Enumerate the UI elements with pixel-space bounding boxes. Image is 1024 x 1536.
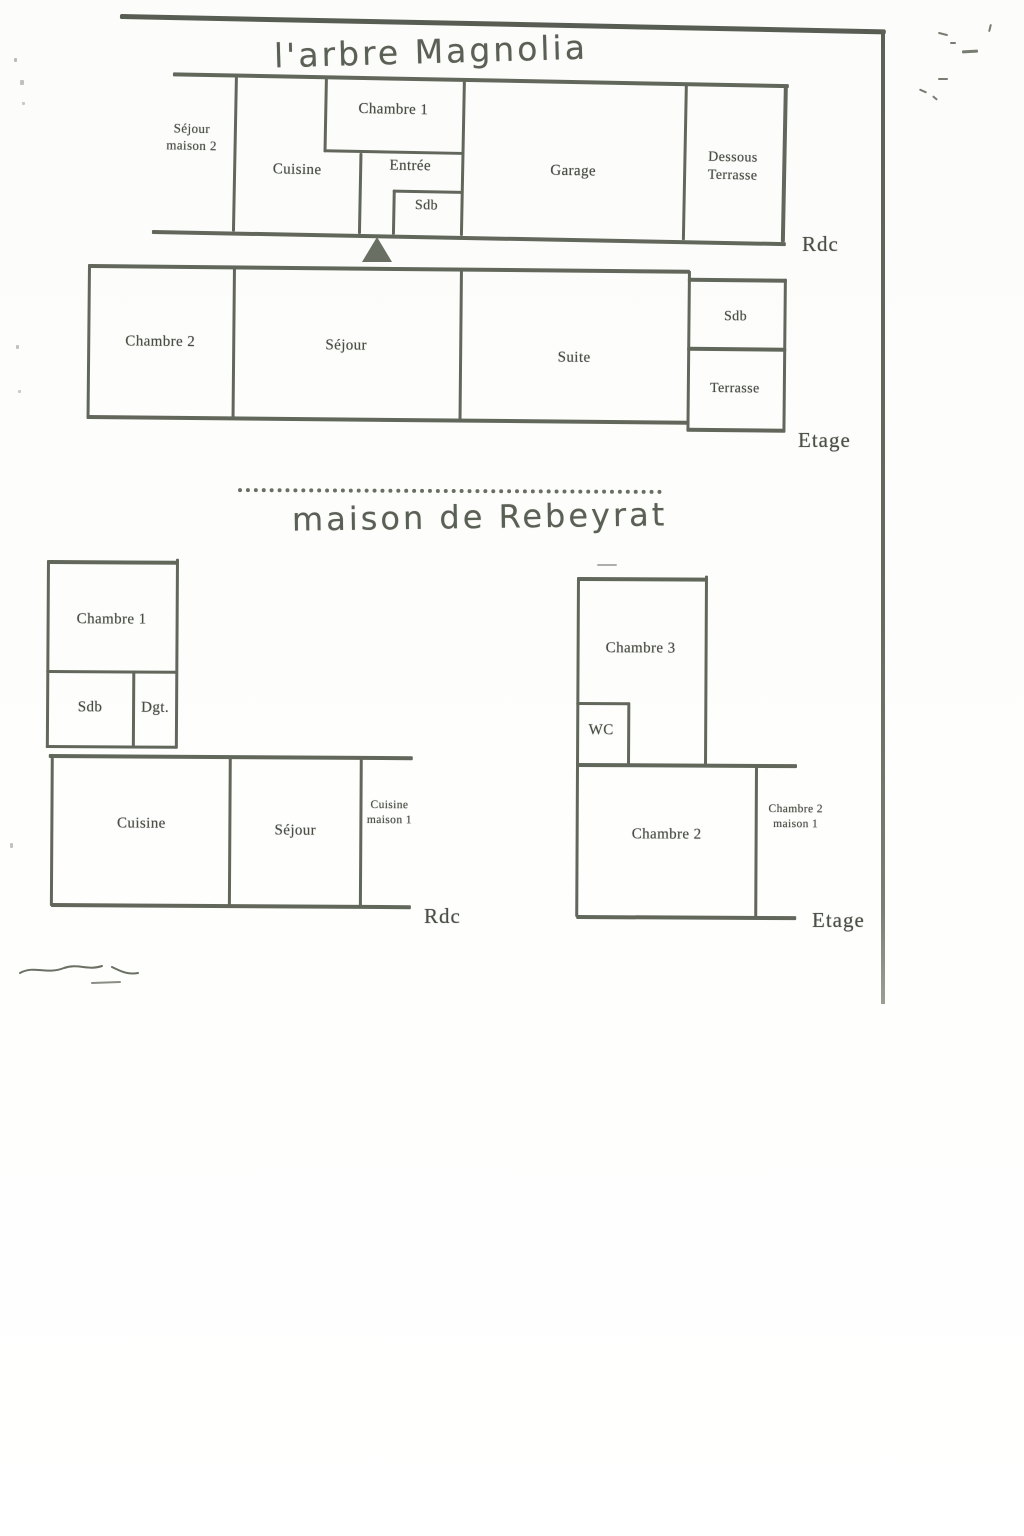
wall-segment xyxy=(754,765,758,917)
wall-segment xyxy=(232,77,238,232)
scan-artifact xyxy=(938,32,948,36)
floor-label-rebeyrat-etage: Etage xyxy=(812,908,865,933)
wall-segment xyxy=(393,190,463,194)
room-wc: WC xyxy=(577,721,625,741)
scan-artifact xyxy=(22,102,25,105)
wall-segment xyxy=(781,87,788,242)
wall-segment xyxy=(46,670,177,674)
room-chambre2: Chambre 2 xyxy=(93,332,227,353)
scan-artifact xyxy=(962,50,978,54)
wall-segment xyxy=(87,264,91,418)
scanned-floorplan-page: l'arbre Magnolia Séjour maison 2 Cuisine… xyxy=(0,0,1024,1536)
wall-segment xyxy=(576,763,797,768)
room-dessous-terrasse: Dessous Terrasse xyxy=(685,148,781,186)
house-title-magnolia: l'arbre Magnolia xyxy=(274,28,589,76)
floor-label-rebeyrat-rdc: Rdc xyxy=(424,904,461,929)
plan-magnolia-etage: Chambre 2 Séjour Suite Sdb Terrasse xyxy=(86,264,787,439)
plan-rebeyrat-rdc: Chambre 1 Sdb Dgt. Cuisine Séjour Cuisin… xyxy=(45,558,419,914)
wall-segment xyxy=(228,756,232,906)
wall-segment xyxy=(576,915,796,920)
scan-artifact xyxy=(16,345,19,349)
scan-artifact xyxy=(932,95,938,100)
floor-label-magnolia-rdc: Rdc xyxy=(802,232,839,257)
page-right-border-line xyxy=(881,30,885,1004)
plan-rebeyrat-etage: Chambre 3 WC Chambre 2 Chambre 2 maison … xyxy=(575,575,805,928)
section-divider-dashed-line xyxy=(238,488,662,494)
wall-segment xyxy=(46,745,177,749)
scan-artifact xyxy=(950,42,956,44)
scan-artifact xyxy=(14,58,17,62)
wall-segment xyxy=(90,264,690,274)
room-chambre2: Chambre 2 xyxy=(586,825,748,845)
room-cuisine: Cuisine xyxy=(237,160,357,182)
wall-segment xyxy=(50,754,54,906)
room-sdb: Sdb xyxy=(395,197,457,216)
scan-artifact xyxy=(18,390,21,393)
room-suite: Suite xyxy=(465,348,683,370)
room-sdb: Sdb xyxy=(50,698,130,718)
room-chambre2-maison1: Chambre 2 maison 1 xyxy=(759,802,833,832)
room-garage: Garage xyxy=(466,160,680,184)
scan-artifact xyxy=(988,24,992,32)
room-terrasse: Terrasse xyxy=(689,380,781,399)
house-title-rebeyrat: maison de Rebeyrat xyxy=(292,495,668,538)
wall-segment xyxy=(627,702,630,764)
room-sejour: Séjour xyxy=(233,821,357,841)
wall-segment xyxy=(359,757,363,907)
wall-segment xyxy=(782,279,786,432)
wall-segment xyxy=(173,72,789,88)
wall-segment xyxy=(686,428,785,433)
wall-segment xyxy=(704,576,708,766)
scan-artifact xyxy=(597,564,617,566)
wall-segment xyxy=(576,702,629,705)
scan-artifact-squiggle xyxy=(16,953,156,998)
wall-segment xyxy=(459,269,463,421)
wall-segment xyxy=(175,559,179,749)
room-cuisine: Cuisine xyxy=(57,814,225,835)
room-chambre1: Chambre 1 xyxy=(50,610,174,630)
room-chambre3: Chambre 3 xyxy=(581,639,701,659)
stairs-arrow-icon xyxy=(362,237,392,262)
room-chambre1: Chambre 1 xyxy=(327,99,459,121)
scan-artifact xyxy=(20,80,24,85)
wall-segment xyxy=(323,149,464,155)
wall-segment xyxy=(579,577,708,582)
scan-artifact xyxy=(10,843,13,848)
room-sejour-maison2: Séjour maison 2 xyxy=(153,120,230,155)
wall-segment xyxy=(232,266,236,418)
wall-segment xyxy=(87,415,689,425)
scan-artifact xyxy=(919,88,927,93)
room-entree: Entrée xyxy=(363,156,457,177)
room-cuisine-maison1: Cuisine maison 1 xyxy=(362,798,416,828)
room-dgt: Dgt. xyxy=(133,699,177,719)
scan-artifact xyxy=(938,78,948,80)
wall-segment xyxy=(358,153,363,234)
room-sejour: Séjour xyxy=(237,335,455,357)
wall-segment xyxy=(49,560,179,565)
room-sdb: Sdb xyxy=(689,308,781,327)
wall-segment xyxy=(688,278,787,283)
plan-magnolia-rdc: Séjour maison 2 Cuisine Chambre 1 Entrée… xyxy=(152,72,789,246)
floor-label-magnolia-etage: Etage xyxy=(798,428,851,453)
wall-segment xyxy=(460,80,466,236)
wall-segment xyxy=(152,230,786,246)
wall-segment xyxy=(687,347,786,352)
wall-segment xyxy=(575,763,579,917)
wall-segment xyxy=(46,560,50,748)
